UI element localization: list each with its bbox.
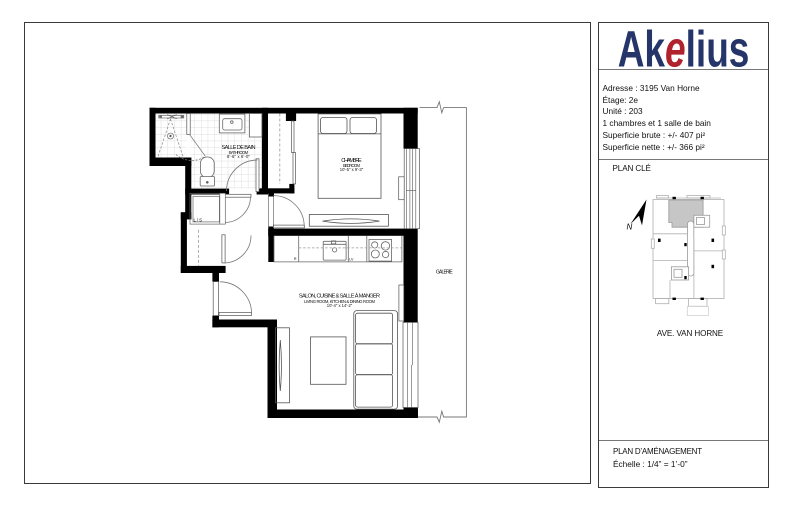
svg-text:Akelius: Akelius [618, 22, 750, 69]
